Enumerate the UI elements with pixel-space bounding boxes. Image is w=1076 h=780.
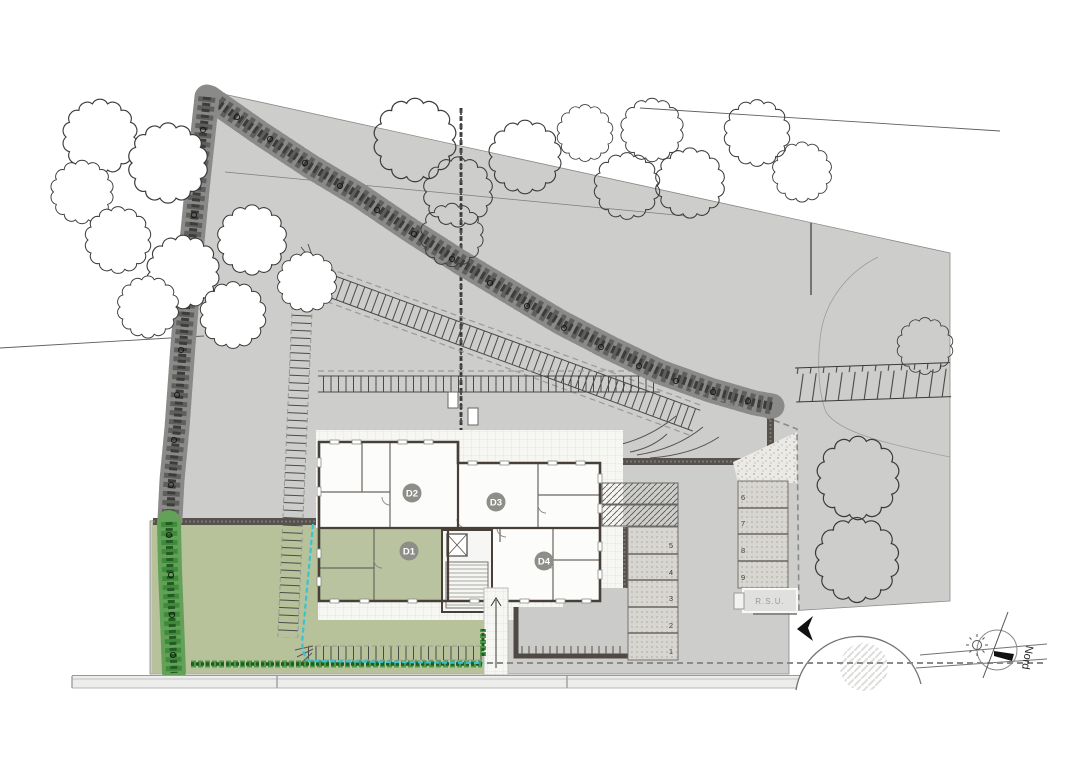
tree-icon [218,205,287,275]
compass-needle-icon [994,651,1014,661]
stall-number: 6 [741,493,745,502]
entrance-walkway [484,588,508,675]
parking-stalls-left: 5 4 3 2 1 [628,527,678,660]
stall-number: 7 [741,519,745,528]
parking-stalls-right: 6 7 8 9 [738,481,788,588]
tree-icon [773,142,832,202]
unit-badge-label-d3: D3 [490,498,502,509]
unit-d2-area [320,442,458,528]
unit-badge-label-d4: D4 [538,557,551,568]
compass-label: Nord [1019,645,1035,671]
parking-band-east [795,363,951,402]
building: D1 D2 D3 D4 [317,440,602,612]
turning-circle [796,616,921,691]
stall-number: 9 [741,573,745,582]
utility-box [448,392,458,408]
unit-badge-label-d2: D2 [406,489,418,500]
tree-icon [724,100,789,167]
tree-icon [129,123,207,203]
tree-icon [557,105,613,162]
stall-number: 1 [669,647,673,656]
compass: Nord [966,612,1035,678]
unit-d1-area [318,528,448,601]
stall-number: 3 [669,594,673,603]
boundary-line-ne [640,108,1000,131]
direction-arrow-icon [797,616,813,641]
utility-box [468,408,478,425]
rsu-label: R.S.U. [755,597,785,606]
rsu-shelter: R.S.U. [734,589,797,614]
tree-icon [278,252,337,312]
stall-number: 5 [669,541,673,550]
tree-icon [85,207,150,274]
stall-number: 4 [669,568,673,577]
carport-stalls [602,483,678,526]
tree-icon [200,282,265,349]
stall-number: 2 [669,621,673,630]
tree-icon [118,276,179,338]
site-plan-drawing: 5 4 3 2 1 6 7 8 9 R.S.U. [0,0,1076,780]
unit-badge-label-d1: D1 [403,547,416,558]
site-plan-canvas: 5 4 3 2 1 6 7 8 9 R.S.U. [0,0,1076,780]
stall-number: 8 [741,546,745,555]
hedge-west-green [169,522,174,673]
turning-circle-island [840,643,888,691]
